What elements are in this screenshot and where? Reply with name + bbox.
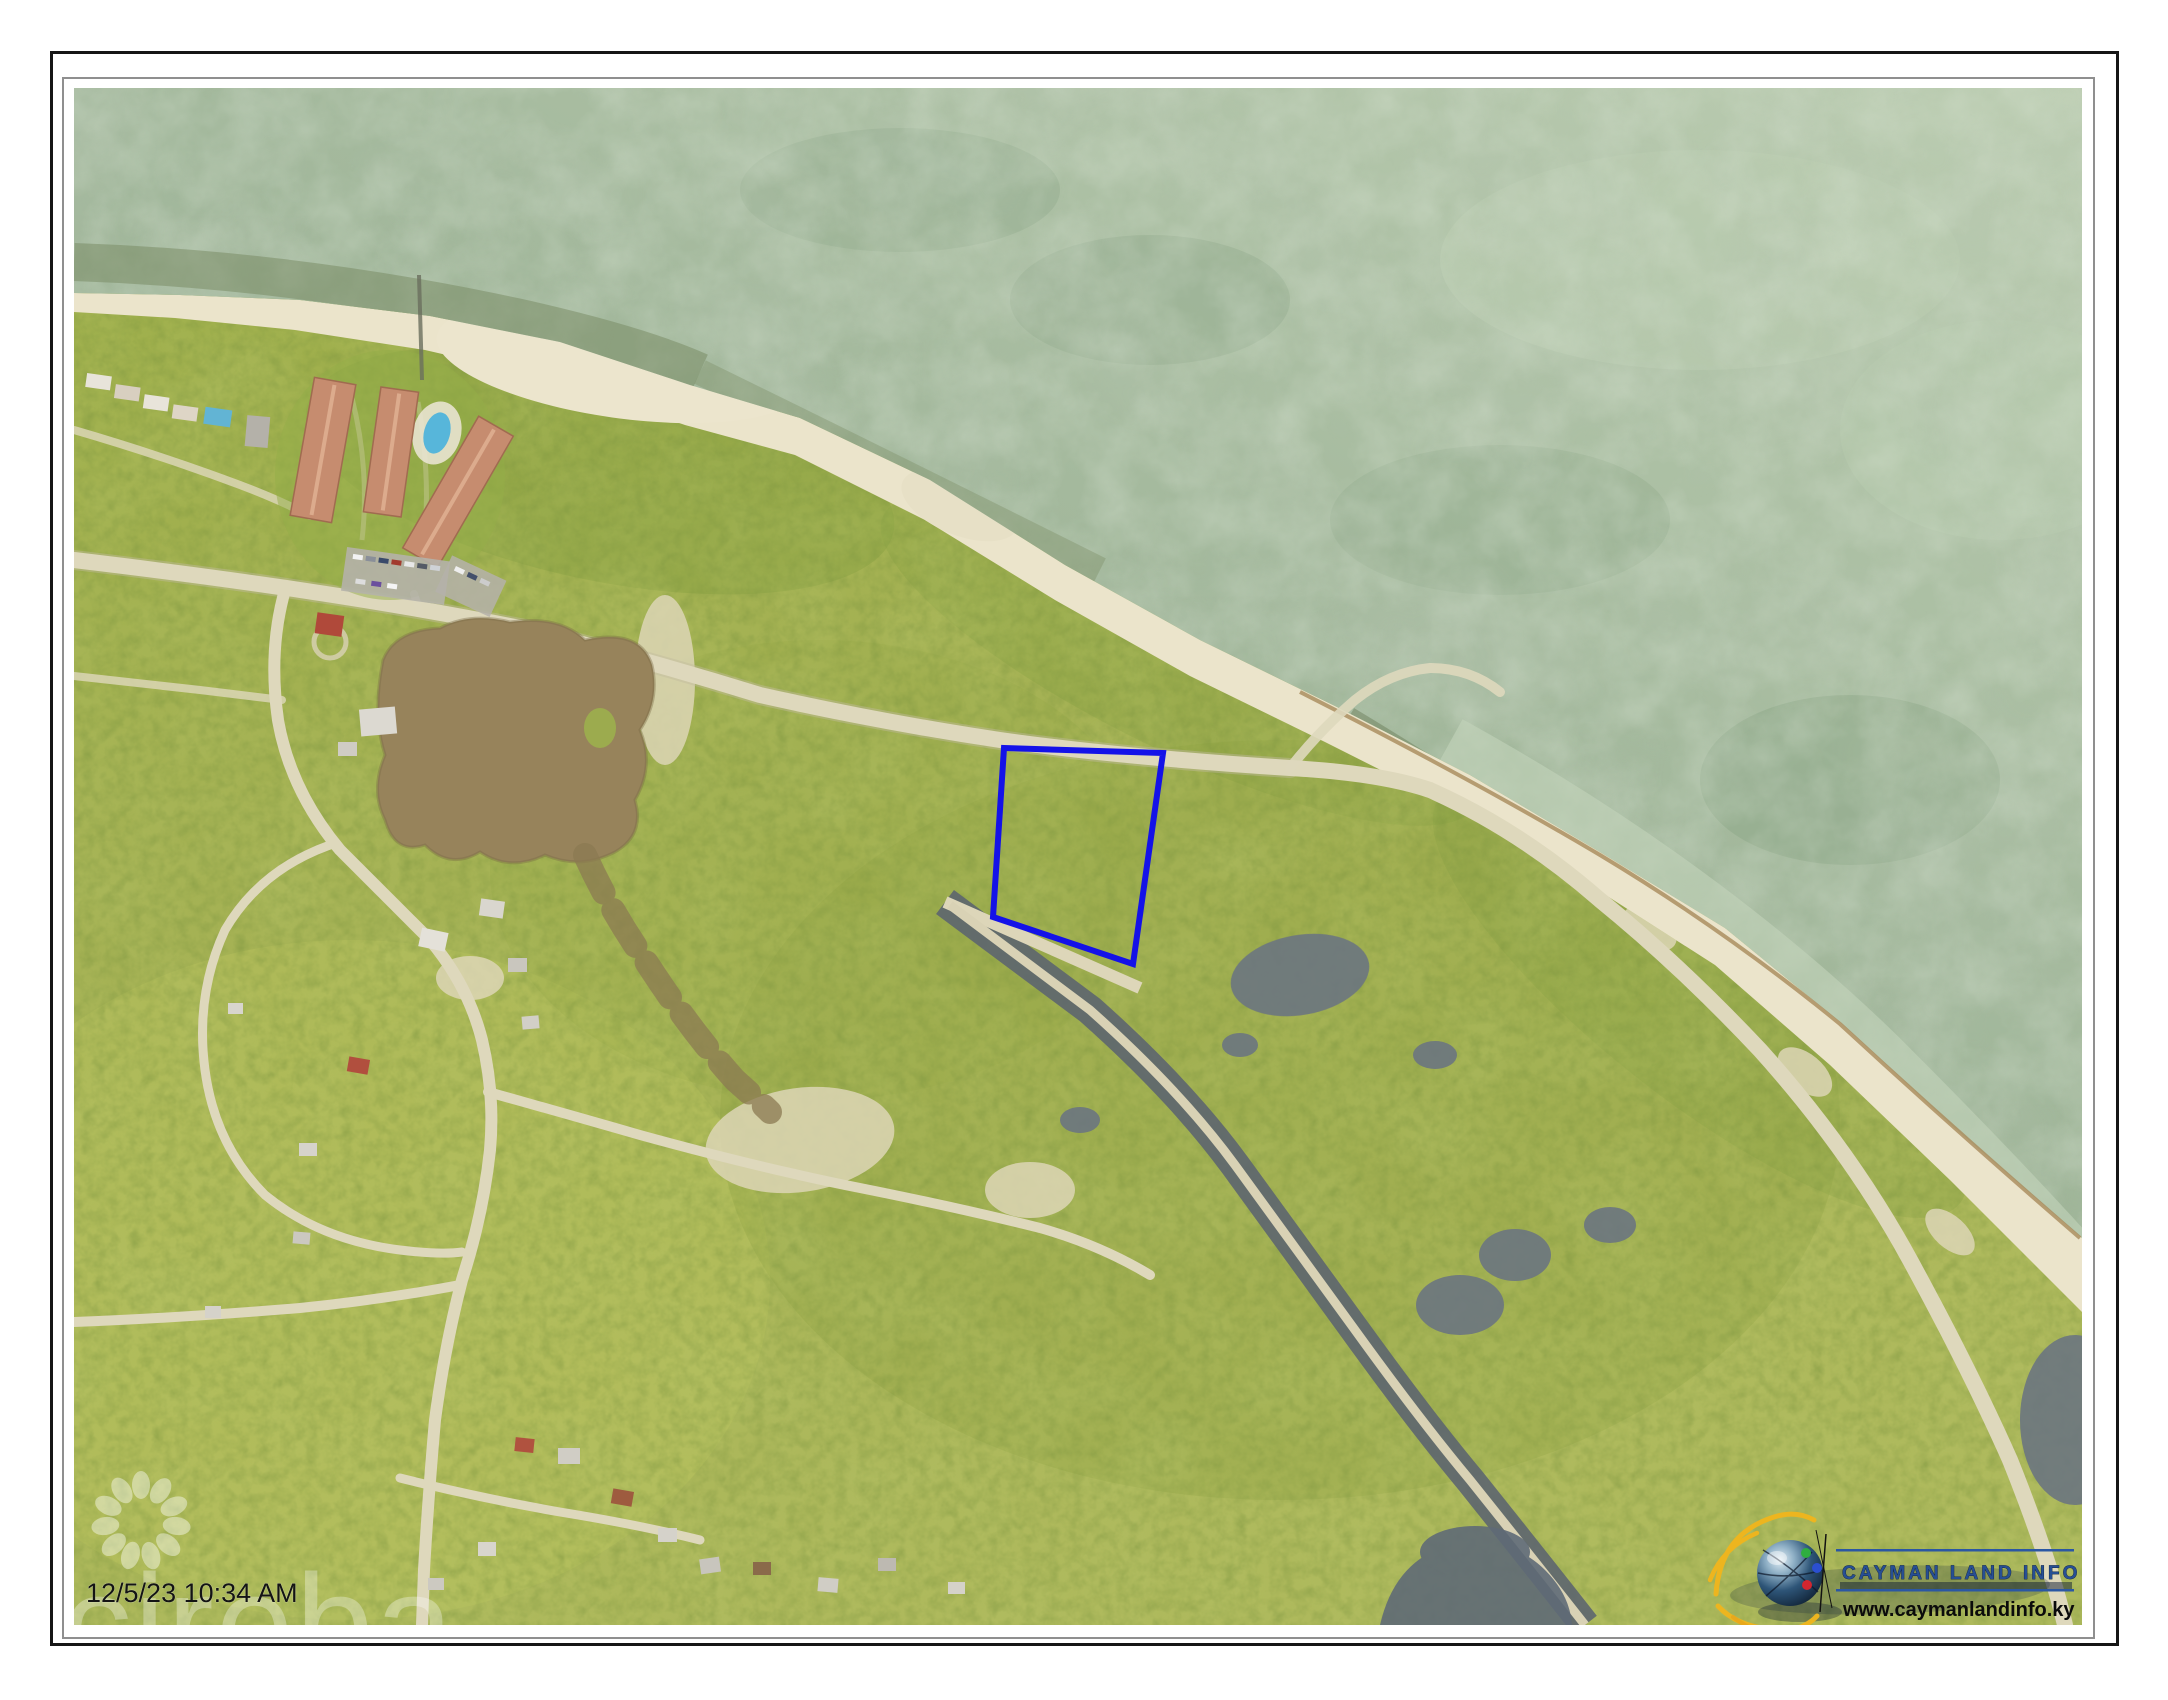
aerial-photo: cireba 12/5/23 10:34 AM (74, 88, 2082, 1625)
logo-title: CAYMAN LAND INFO (1842, 1563, 2080, 1584)
map-document-page: cireba 12/5/23 10:34 AM (0, 0, 2168, 1700)
timestamp: 12/5/23 10:34 AM (86, 1578, 298, 1608)
aerial-photo-canvas: cireba 12/5/23 10:34 AM (74, 88, 2082, 1625)
logo-website-url: www.caymanlandinfo.ky (1842, 1599, 2075, 1621)
red-roof-house (315, 612, 345, 637)
